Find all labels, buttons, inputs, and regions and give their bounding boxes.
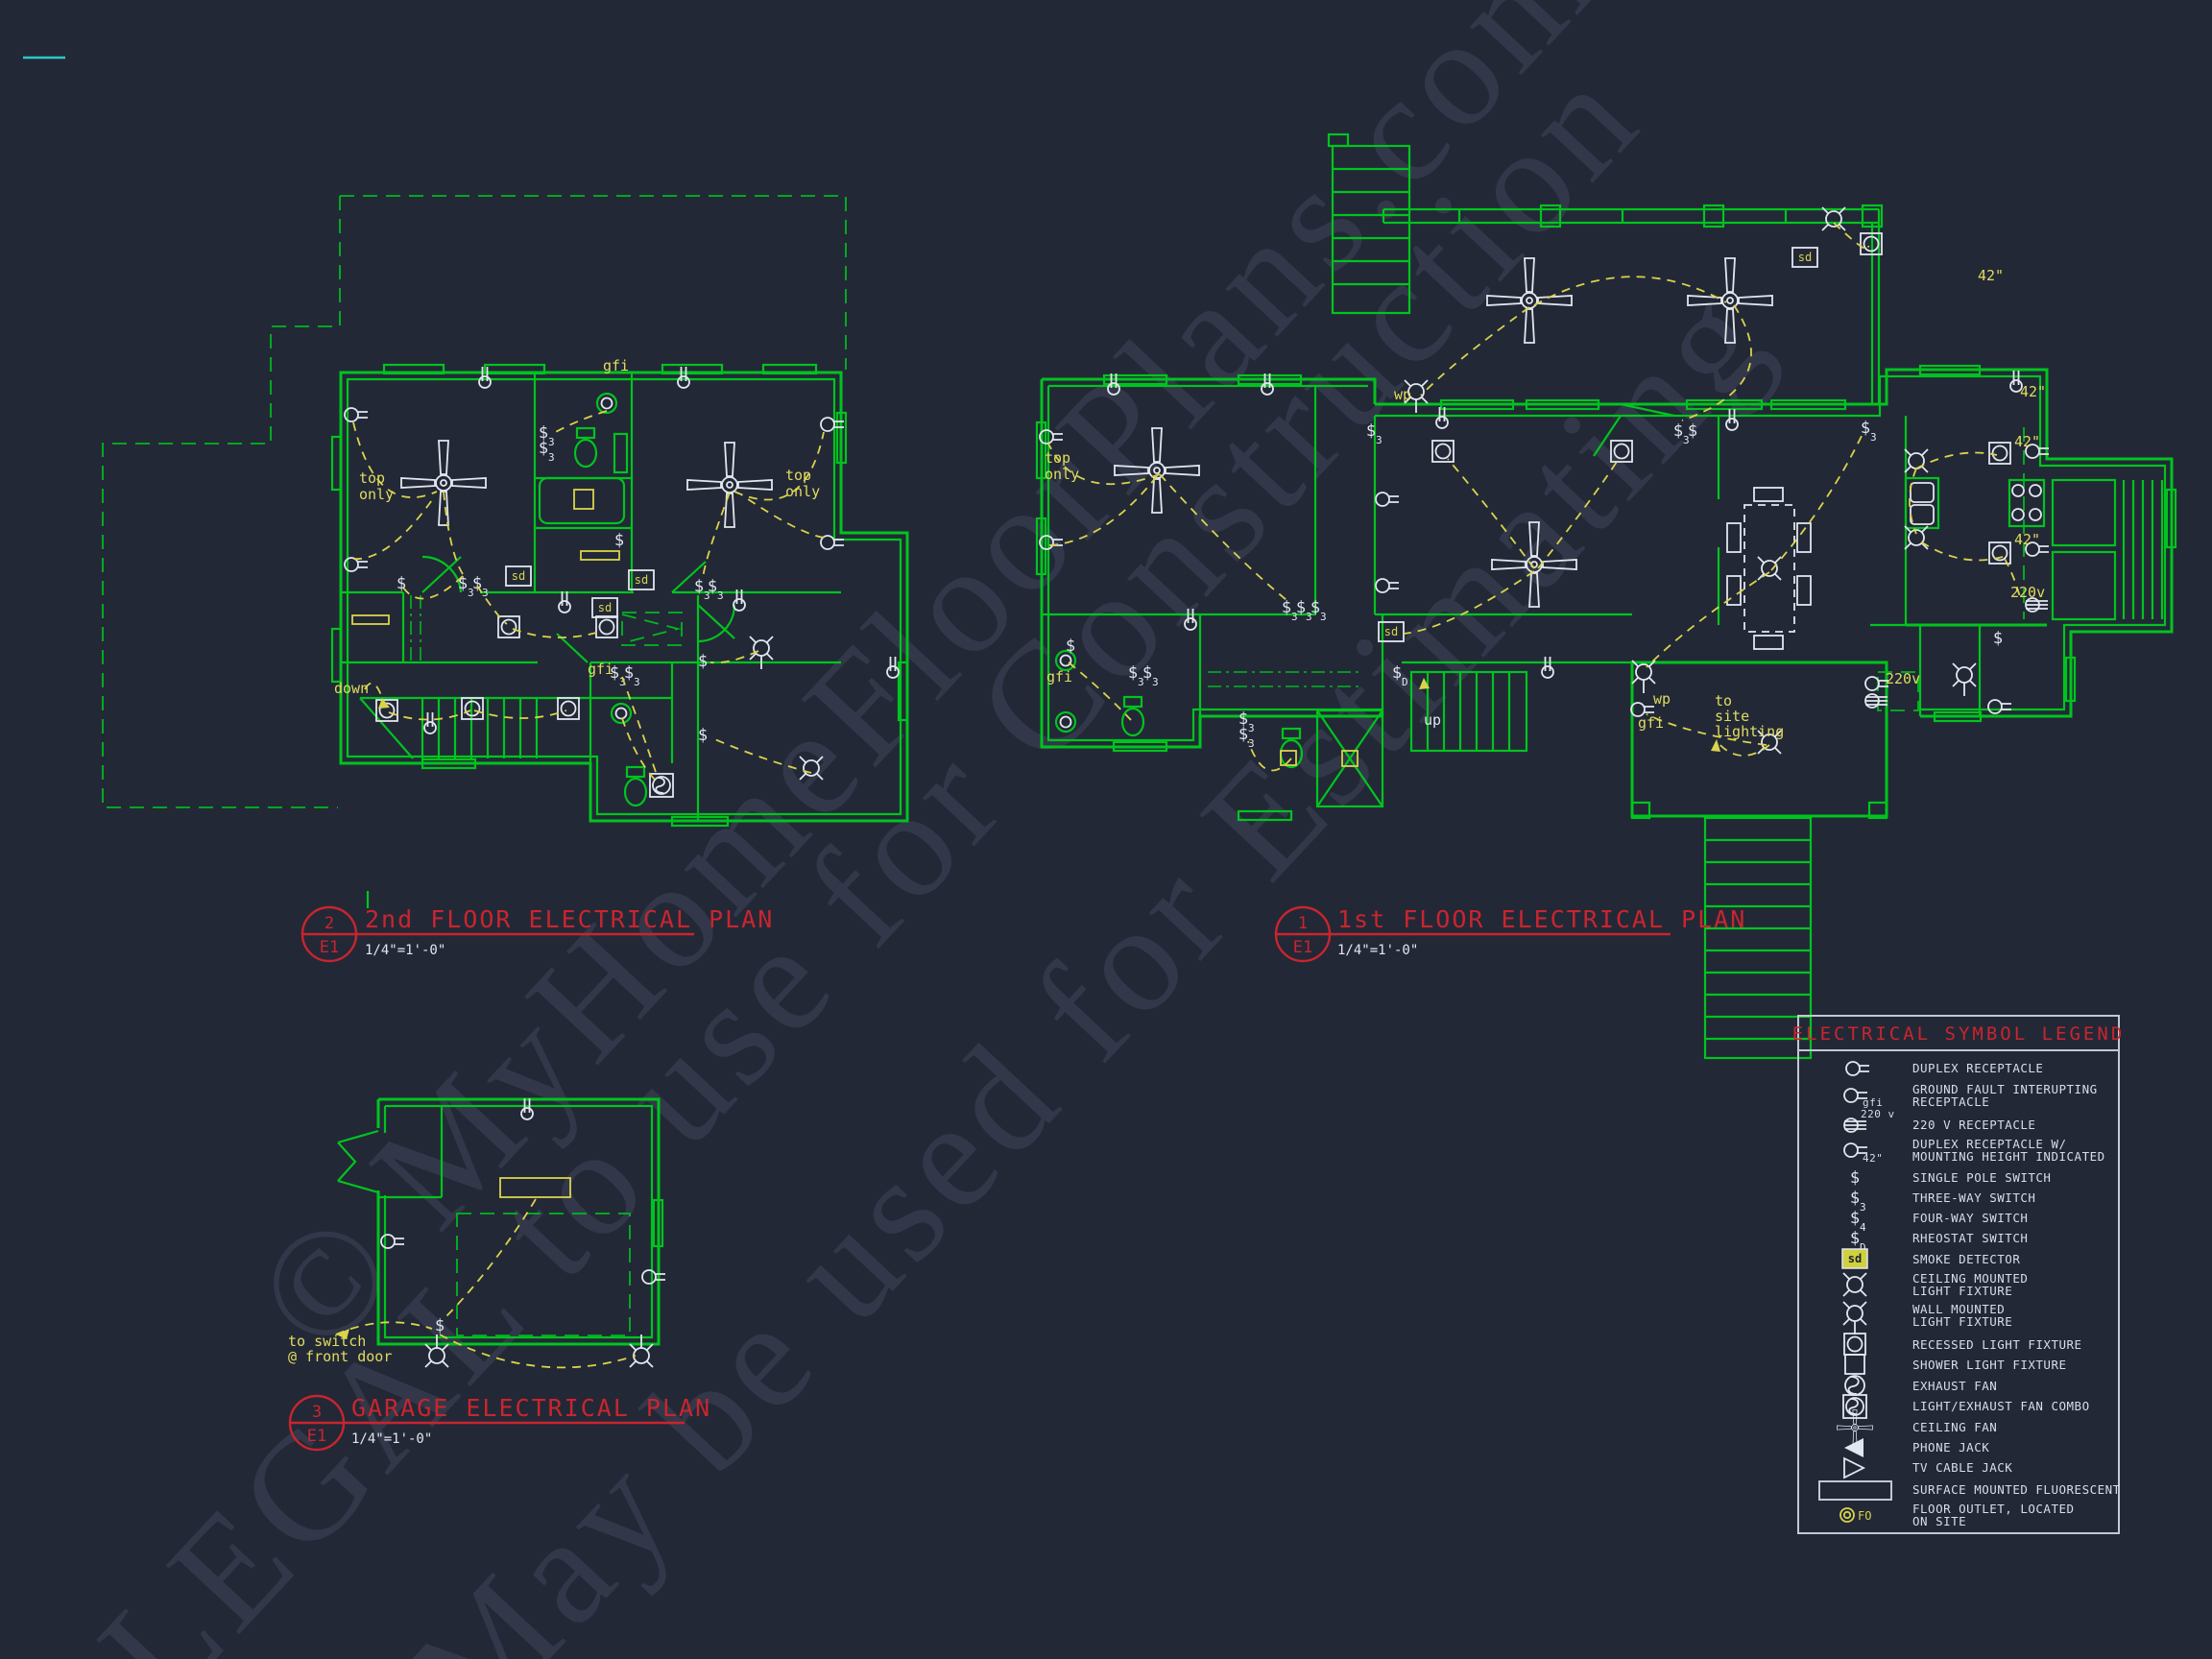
svg-text:TV CABLE JACK: TV CABLE JACK <box>1912 1460 2012 1475</box>
detail-number: 3 <box>312 1403 322 1422</box>
ceiling-light <box>1758 557 1781 580</box>
legend-item-light-exhaust-fan-combo: LIGHT/EXHAUST FAN COMBO <box>1843 1395 2090 1418</box>
svg-text:RECEPTACLE: RECEPTACLE <box>1912 1094 1989 1109</box>
svg-text:EXHAUST FAN: EXHAUST FAN <box>1912 1379 1997 1393</box>
label-top-only: top <box>359 469 385 487</box>
svg-text:220 V RECEPTACLE: 220 V RECEPTACLE <box>1912 1118 2035 1132</box>
watermark: © MyHomeFloorPlans.com ILLEGAL to use fo… <box>0 0 1801 1659</box>
label-down: down <box>334 680 369 697</box>
svg-text:RHEOSTAT SWITCH: RHEOSTAT SWITCH <box>1912 1231 2028 1245</box>
label-wp: wp <box>1653 690 1671 708</box>
label-42: 42" <box>2014 433 2040 450</box>
svg-text:PHONE JACK: PHONE JACK <box>1912 1440 1989 1455</box>
svg-text:SINGLE POLE SWITCH: SINGLE POLE SWITCH <box>1912 1170 2051 1185</box>
legend-item-gfi-receptacle: gfi GROUND FAULT INTERUPTING RECEPTACLE <box>1844 1082 2098 1109</box>
smoke-detector <box>506 566 531 586</box>
bath-fixtures <box>540 394 673 805</box>
legend-item-surface-mounted-fluorescent: SURFACE MOUNTED FLUORESCENT <box>1819 1481 2121 1500</box>
attic-access <box>622 613 682 645</box>
kitchen <box>1905 371 2162 619</box>
svg-text:MOUNTING HEIGHT INDICATED: MOUNTING HEIGHT INDICATED <box>1912 1149 2105 1164</box>
label-gfi: gfi <box>603 357 629 374</box>
svg-text:220 v: 220 v <box>1861 1108 1895 1120</box>
svg-text:SMOKE DETECTOR: SMOKE DETECTOR <box>1912 1252 2020 1266</box>
front-stairs <box>1705 818 1811 1058</box>
switches <box>397 423 724 745</box>
roof-outline-dashed <box>340 196 846 370</box>
label-42: 42" <box>2014 531 2040 548</box>
recessed-light <box>1989 542 2010 564</box>
svg-text:only: only <box>1045 466 1079 483</box>
vanity-light <box>614 434 627 472</box>
svg-text:THREE-WAY SWITCH: THREE-WAY SWITCH <box>1912 1190 2035 1205</box>
smoke-detector <box>592 598 617 617</box>
svg-text:lighting: lighting <box>1715 723 1784 740</box>
svg-text:FOUR-WAY SWITCH: FOUR-WAY SWITCH <box>1912 1211 2028 1225</box>
label-wp: wp <box>1394 386 1411 403</box>
shower-light <box>574 490 593 509</box>
doors <box>422 557 734 662</box>
legend-item-220v-receptacle: 220 v 220 V RECEPTACLE <box>1844 1108 2035 1132</box>
sheet-ref: E1 <box>307 1427 326 1446</box>
pantry-shelves <box>2124 480 2162 619</box>
dining-table <box>1727 488 1811 649</box>
plan-title: GARAGE ELECTRICAL PLAN <box>351 1394 711 1422</box>
legend-item-recessed-light: RECESSED LIGHT FIXTURE <box>1844 1334 2082 1355</box>
ceiling-fan <box>401 441 486 525</box>
watermark-line-2: ILLEGAL to use for Construction <box>0 31 1672 1659</box>
legend-item-phone-jack: PHONE JACK <box>1844 1438 1989 1457</box>
legend-item-duplex-mounting-height: 42" DUPLEX RECEPTACLE W/ MOUNTING HEIGHT… <box>1844 1137 2105 1165</box>
legend-item-exhaust-fan: EXHAUST FAN <box>1845 1376 1997 1395</box>
svg-text:42": 42" <box>1863 1152 1883 1165</box>
plan-scale: 1/4"=1'-0" <box>365 943 445 958</box>
wire-arrow <box>1711 739 1720 752</box>
title-first-floor: 1 E1 1st FLOOR ELECTRICAL PLAN 1/4"=1'-0… <box>1276 905 1746 961</box>
refrigerator <box>2053 480 2115 619</box>
fluorescent <box>352 615 389 624</box>
toilet <box>575 428 596 467</box>
ceiling-fan <box>687 443 772 527</box>
svg-text:LIGHT/EXHAUST FAN COMBO: LIGHT/EXHAUST FAN COMBO <box>1912 1399 2090 1413</box>
svg-text:SHOWER LIGHT FIXTURE: SHOWER LIGHT FIXTURE <box>1912 1358 2067 1372</box>
220v-receptacle <box>1865 694 1887 708</box>
legend-item-ceiling-mounted-light: CEILING MOUNTED LIGHT FIXTURE <box>1843 1271 2028 1298</box>
ceiling-light <box>1822 207 1845 230</box>
switch <box>435 1316 445 1335</box>
label-42: 42" <box>2020 383 2046 400</box>
label-top-only: top <box>1045 449 1070 467</box>
recessed-light <box>1989 443 2010 464</box>
legend-item-rheostat-switch: RHEOSTAT SWITCH <box>1850 1229 2029 1254</box>
wall-light <box>1953 663 1976 696</box>
legend-item-tv-cable-jack: TV CABLE JACK <box>1844 1458 2012 1478</box>
plan-title: 2nd FLOOR ELECTRICAL PLAN <box>365 905 774 933</box>
detail-number: 2 <box>325 914 334 933</box>
electrical-plan-sheet: sd sd FO $ $3 $4 $D © MyHomeFloorPlans.c… <box>0 0 2212 1659</box>
svg-text:ON SITE: ON SITE <box>1912 1514 1966 1528</box>
label-gfi: gfi <box>1638 714 1664 732</box>
label-top-only: top <box>785 467 811 484</box>
svg-text:LIGHT FIXTURE: LIGHT FIXTURE <box>1912 1284 2012 1298</box>
plan-scale: 1/4"=1'-0" <box>1337 943 1418 958</box>
svg-text:DUPLEX RECEPTACLE: DUPLEX RECEPTACLE <box>1912 1061 2043 1075</box>
svg-text:@ front door: @ front door <box>288 1348 392 1365</box>
plan-scale: 1/4"=1'-0" <box>351 1431 432 1447</box>
roof-outline-dashed-left <box>103 196 340 807</box>
pendant-light <box>1905 526 1928 549</box>
recessed-light <box>1432 441 1454 462</box>
sheet-ref: E1 <box>1293 938 1312 957</box>
toilet <box>625 767 646 805</box>
svg-text:LIGHT FIXTURE: LIGHT FIXTURE <box>1912 1314 2012 1329</box>
label-42: 42" <box>1978 267 2004 284</box>
svg-text:only: only <box>359 486 394 503</box>
sink <box>597 394 616 413</box>
sheet-ref: E1 <box>320 938 339 957</box>
svg-text:SURFACE MOUNTED FLUORESCENT: SURFACE MOUNTED FLUORESCENT <box>1912 1482 2121 1497</box>
legend-title: ELECTRICAL SYMBOL LEGEND <box>1792 1023 2126 1045</box>
svg-text:only: only <box>785 483 820 500</box>
svg-text:CEILING FAN: CEILING FAN <box>1912 1420 1997 1434</box>
stairs-down <box>360 698 672 758</box>
label-220v: 220v <box>2010 584 2045 601</box>
label-220v: 220v <box>1886 670 1920 687</box>
fluorescent <box>581 551 619 560</box>
legend-item-shower-light: SHOWER LIGHT FIXTURE <box>1845 1355 2067 1374</box>
receptacle <box>642 1270 665 1284</box>
legend-item-wall-mounted-light: WALL MOUNTED LIGHT FIXTURE <box>1843 1302 2012 1334</box>
plan-title: 1st FLOOR ELECTRICAL PLAN <box>1337 905 1746 933</box>
label-gfi: gfi <box>1046 668 1072 685</box>
electrical-symbol-legend: ELECTRICAL SYMBOL LEGEND DUPLEX RECEPTAC… <box>1792 1016 2126 1533</box>
label-gfi: gfi <box>588 661 613 678</box>
detail-number: 1 <box>1298 914 1308 933</box>
sink <box>612 704 631 723</box>
label-up: up <box>1424 711 1441 729</box>
svg-text:RECESSED LIGHT FIXTURE: RECESSED LIGHT FIXTURE <box>1912 1337 2082 1352</box>
legend-item-smoke-detector: SMOKE DETECTOR <box>1842 1249 2020 1268</box>
legend-item-single-pole-switch: SINGLE POLE SWITCH <box>1850 1168 2052 1188</box>
tub <box>540 478 624 523</box>
legend-item-floor-outlet: FLOOR OUTLET, LOCATED ON SITE <box>1840 1502 2075 1528</box>
wall-light <box>1632 661 1655 693</box>
smoke-detector <box>1792 248 1817 267</box>
closet-rod <box>411 595 421 661</box>
legend-item-duplex-receptacle: DUPLEX RECEPTACLE <box>1846 1061 2043 1075</box>
